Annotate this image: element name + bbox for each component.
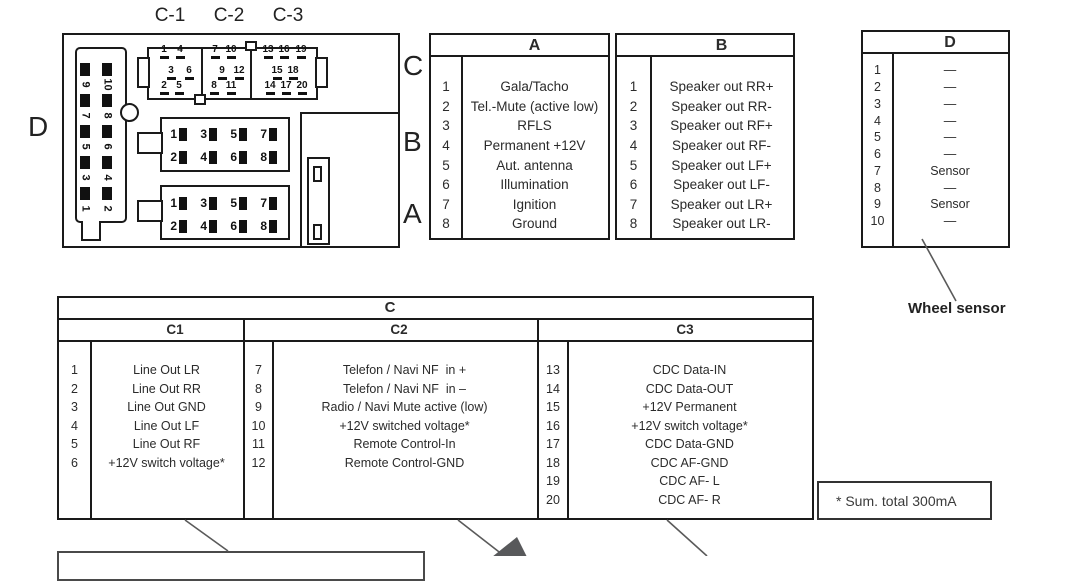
pin-number-cell: 8 <box>617 216 650 231</box>
pin-label-cell: — <box>892 130 1008 144</box>
pin-number: 10 <box>101 78 114 90</box>
pin-number-cell: 9 <box>245 400 272 414</box>
pin-number: 4 <box>177 45 183 55</box>
pin-number-cell: 1 <box>59 363 90 377</box>
table-row: 16+12V switch voltage* <box>539 417 812 436</box>
pin-number-cell: 13 <box>539 363 567 377</box>
pin-contact <box>227 56 236 59</box>
pin-label-cell: Line Out RR <box>90 382 243 396</box>
pin-marker: 6 <box>228 150 247 164</box>
pin-label-cell: Speaker out LR- <box>650 216 793 231</box>
pin-label-cell: — <box>892 147 1008 161</box>
pin-number-cell: 6 <box>59 456 90 470</box>
pin-contact <box>239 151 247 164</box>
pin-contact <box>239 220 247 233</box>
table-c1-section: 1Line Out LR2Line Out RR3Line Out GND4Li… <box>59 342 243 518</box>
pinout-sheet: 91078563412 1471013161936912151825811141… <box>0 0 1074 556</box>
pin-contact <box>266 92 275 95</box>
connector-latch-slot <box>313 224 322 240</box>
pin-contact <box>210 92 219 95</box>
pin-contact <box>211 56 220 59</box>
table-row: 7Telefon / Navi NF in + <box>245 361 537 380</box>
pin-marker: 2 <box>98 187 116 215</box>
table-c-body: 1Line Out LR2Line Out RR3Line Out GND4Li… <box>59 342 812 518</box>
pin-label-cell: CDC Data-IN <box>567 363 812 377</box>
pin-marker: 15 <box>269 66 285 80</box>
pin-number: 13 <box>262 45 273 55</box>
pin-contact <box>282 92 291 95</box>
pin-marker: 1 <box>156 45 172 59</box>
pin-marker: 8 <box>258 150 277 164</box>
pin-marker: 8 <box>206 81 222 95</box>
table-row: 2Line Out RR <box>59 380 243 399</box>
pin-label-cell: CDC AF- R <box>567 493 812 507</box>
pin-number: 6 <box>228 150 237 164</box>
pin-contact <box>179 197 187 210</box>
table-c-header: C <box>59 298 812 320</box>
pin-number-cell: 4 <box>863 114 892 128</box>
connector-c-right-tab <box>315 57 328 88</box>
pin-contact <box>102 125 112 138</box>
pin-number: 8 <box>258 150 267 164</box>
pin-label-cell: Line Out RF <box>90 437 243 451</box>
pin-marker: 9 <box>214 66 230 80</box>
table-row: 6— <box>863 146 1008 163</box>
pin-number: 3 <box>198 196 207 210</box>
pin-label-cell: CDC AF- L <box>567 474 812 488</box>
pin-label-cell: Line Out GND <box>90 400 243 414</box>
pin-marker: 3 <box>76 156 94 184</box>
table-row: 4Permanent +12V <box>431 136 608 156</box>
pin-contact <box>102 94 112 107</box>
pin-marker: 3 <box>198 196 217 210</box>
pin-number-cell: 12 <box>245 456 272 470</box>
pin-contact <box>239 128 247 141</box>
current-note-text: * Sum. total 300mA <box>836 493 957 509</box>
pin-number-cell: 2 <box>617 99 650 114</box>
pin-label-cell: Speaker out RR+ <box>650 79 793 94</box>
connector-c-top-slot <box>245 41 257 51</box>
column-divider <box>892 54 894 246</box>
leader-line-c2 <box>458 520 503 555</box>
pin-label-cell: Sensor <box>892 197 1008 211</box>
pin-label-cell: Illumination <box>461 177 608 192</box>
section-divider <box>243 320 245 518</box>
pin-number: 5 <box>228 196 237 210</box>
pin-number-cell: 15 <box>539 400 567 414</box>
pin-label-cell: +12V switch voltage* <box>90 456 243 470</box>
table-b-body: 1Speaker out RR+2Speaker out RR-3Speaker… <box>617 57 793 238</box>
pin-contact <box>160 56 169 59</box>
pin-number: 3 <box>79 174 92 180</box>
pin-number-cell: 1 <box>431 79 461 94</box>
pin-number-cell: 2 <box>59 382 90 396</box>
pin-number: 3 <box>198 127 207 141</box>
label-row-c: C <box>403 50 423 82</box>
pin-number-cell: 4 <box>59 419 90 433</box>
table-row: 2— <box>863 79 1008 96</box>
pin-contact <box>264 56 273 59</box>
table-row: 8Speaker out LR- <box>617 214 793 234</box>
pin-number: 2 <box>101 205 114 211</box>
table-row: 13CDC Data-IN <box>539 361 812 380</box>
pin-contact <box>269 220 277 233</box>
pin-label-cell: +12V Permanent <box>567 400 812 414</box>
table-row: 10— <box>863 213 1008 230</box>
table-row: 3RFLS <box>431 116 608 136</box>
pin-label-cell: Speaker out RR- <box>650 99 793 114</box>
pin-marker: 6 <box>228 219 247 233</box>
pin-number-cell: 6 <box>431 177 461 192</box>
pin-table-c: C C1 C2 C3 1Line Out LR2Line Out RR3Line… <box>57 296 814 520</box>
pin-number-cell: 18 <box>539 456 567 470</box>
pin-number: 8 <box>211 81 217 91</box>
pin-contact <box>209 151 217 164</box>
connector-c-divider <box>250 47 252 100</box>
pin-number: 6 <box>186 66 192 76</box>
pin-label-cell: Tel.-Mute (active low) <box>461 99 608 114</box>
pin-label-cell: Line Out LF <box>90 419 243 433</box>
pin-number: 10 <box>225 45 236 55</box>
pin-number: 4 <box>198 150 207 164</box>
pin-number-cell: 16 <box>539 419 567 433</box>
pin-marker: 4 <box>198 219 217 233</box>
pin-number-cell: 7 <box>245 363 272 377</box>
table-c2-section: 7Telefon / Navi NF in +8Telefon / Navi N… <box>245 342 537 518</box>
pin-marker: 1 <box>168 127 187 141</box>
table-c3-section: 13CDC Data-IN14CDC Data-OUT15+12V Perman… <box>539 342 812 518</box>
pin-number: 2 <box>168 150 177 164</box>
pin-label-cell: CDC AF-GND <box>567 456 812 470</box>
pin-number: 16 <box>278 45 289 55</box>
pin-number: 8 <box>258 219 267 233</box>
pin-number-cell: 8 <box>431 216 461 231</box>
pin-number-cell: 3 <box>59 400 90 414</box>
pin-table-b: B 1Speaker out RR+2Speaker out RR-3Speak… <box>615 33 795 240</box>
pin-contact <box>297 56 306 59</box>
pin-marker: 3 <box>163 66 179 80</box>
table-row: 2Tel.-Mute (active low) <box>431 97 608 117</box>
pin-contact <box>209 197 217 210</box>
table-row: 15+12V Permanent <box>539 398 812 417</box>
connector-c-left-tab <box>137 57 150 88</box>
pin-marker: 14 <box>262 81 278 95</box>
table-c-subheader: C1 C2 C3 <box>59 320 812 342</box>
label-c2-group: C-2 <box>206 5 252 27</box>
pin-number: 17 <box>280 81 291 91</box>
label-row-d: D <box>28 111 48 143</box>
pin-number-cell: 19 <box>539 474 567 488</box>
pin-contact <box>102 156 112 169</box>
table-c1-header: C1 <box>125 320 225 340</box>
pin-contact <box>160 92 169 95</box>
table-row: 5Line Out RF <box>59 435 243 454</box>
pin-contact <box>239 197 247 210</box>
pin-number: 7 <box>258 196 267 210</box>
label-row-a: A <box>403 198 422 230</box>
pin-contact <box>185 77 194 80</box>
pin-marker: 20 <box>294 81 310 95</box>
pin-number-cell: 3 <box>863 97 892 111</box>
pin-label-cell: Telefon / Navi NF in – <box>272 382 537 396</box>
connector-guide-hole <box>120 103 139 122</box>
pin-label-cell: Gala/Tacho <box>461 79 608 94</box>
pin-label-cell: Radio / Navi Mute active (low) <box>272 400 537 414</box>
pin-marker: 9 <box>76 63 94 91</box>
pin-number-cell: 6 <box>617 177 650 192</box>
pin-number-cell: 8 <box>863 181 892 195</box>
pin-number: 11 <box>226 81 237 91</box>
pin-marker: 7 <box>207 45 223 59</box>
table-row: 10+12V switched voltage* <box>245 417 537 436</box>
pin-marker: 16 <box>276 45 292 59</box>
pin-contact <box>280 56 289 59</box>
pin-number-cell: 20 <box>539 493 567 507</box>
pin-marker: 2 <box>168 150 187 164</box>
pin-marker: 5 <box>171 81 187 95</box>
pin-number: 3 <box>168 66 174 76</box>
connector-b-notch <box>137 132 163 154</box>
pin-number-cell: 8 <box>245 382 272 396</box>
pin-number: 8 <box>101 112 114 118</box>
pin-number: 4 <box>101 174 114 180</box>
pin-contact <box>80 125 90 138</box>
pin-number: 1 <box>168 127 177 141</box>
table-row: 9Radio / Navi Mute active (low) <box>245 398 537 417</box>
pin-number: 1 <box>161 45 167 55</box>
pin-contact <box>269 128 277 141</box>
pin-contact <box>227 92 236 95</box>
pin-marker: 4 <box>98 156 116 184</box>
table-row: 18CDC AF-GND <box>539 454 812 473</box>
pin-contact <box>298 92 307 95</box>
pin-label-cell: Speaker out RF+ <box>650 118 793 133</box>
pin-number-cell: 5 <box>863 130 892 144</box>
table-row: 1Speaker out RR+ <box>617 77 793 97</box>
pin-contact <box>179 128 187 141</box>
pin-contact <box>269 197 277 210</box>
pin-label-cell: Remote Control-In <box>272 437 537 451</box>
column-divider <box>90 342 92 518</box>
connector-latch-slot <box>313 166 322 182</box>
pin-label-cell: — <box>892 97 1008 111</box>
pin-number-cell: 2 <box>863 80 892 94</box>
table-c3-header: C3 <box>635 320 735 340</box>
pin-number: 5 <box>79 143 92 149</box>
table-row: 7Ignition <box>431 195 608 215</box>
table-row: 4Speaker out RF- <box>617 136 793 156</box>
pin-label-cell: Speaker out LF- <box>650 177 793 192</box>
pin-marker: 6 <box>181 66 197 80</box>
pin-label-cell: — <box>892 181 1008 195</box>
column-divider <box>272 342 274 518</box>
connector-d-key-tab <box>81 221 101 241</box>
pin-label-cell: Permanent +12V <box>461 138 608 153</box>
table-b-header: B <box>617 35 793 57</box>
pin-label-cell: Ground <box>461 216 608 231</box>
pin-number: 19 <box>295 45 306 55</box>
table-row: 8Telefon / Navi NF in – <box>245 380 537 399</box>
pin-number: 5 <box>176 81 182 91</box>
pin-marker: 19 <box>293 45 309 59</box>
pin-marker: 1 <box>76 187 94 215</box>
pin-marker: 10 <box>223 45 239 59</box>
connector-a-notch <box>137 200 163 222</box>
table-row: 4— <box>863 112 1008 129</box>
pin-marker: 5 <box>228 196 247 210</box>
label-row-b: B <box>403 126 422 158</box>
pin-number-cell: 4 <box>431 138 461 153</box>
pin-label-cell: +12V switched voltage* <box>272 419 537 433</box>
table-row: 7Sensor <box>863 163 1008 180</box>
pin-contact <box>179 151 187 164</box>
table-row: 1Line Out LR <box>59 361 243 380</box>
table-row: 14CDC Data-OUT <box>539 380 812 399</box>
pin-table-d: D 1—2—3—4—5—6—7Sensor8—9Sensor10— <box>861 30 1010 248</box>
leader-line-c3 <box>667 520 707 556</box>
pin-number: 20 <box>296 81 307 91</box>
pin-number-cell: 1 <box>617 79 650 94</box>
table-row: 4Line Out LF <box>59 417 243 436</box>
pin-number-cell: 10 <box>245 419 272 433</box>
pin-marker: 4 <box>172 45 188 59</box>
pin-marker: 8 <box>258 219 277 233</box>
pin-label-cell: — <box>892 114 1008 128</box>
leader-line-wheel-sensor <box>922 239 956 301</box>
pin-number: 2 <box>161 81 167 91</box>
section-divider <box>537 320 539 518</box>
pin-contact <box>102 187 112 200</box>
column-divider <box>461 57 463 238</box>
pin-number-cell: 3 <box>431 118 461 133</box>
pin-number-cell: 7 <box>431 197 461 212</box>
pin-number: 9 <box>219 66 225 76</box>
pin-contact <box>175 92 184 95</box>
pin-marker: 7 <box>258 127 277 141</box>
pin-number: 1 <box>79 205 92 211</box>
current-note-box: * Sum. total 300mA <box>817 481 992 520</box>
pin-label-cell: Telefon / Navi NF in + <box>272 363 537 377</box>
pin-marker: 6 <box>98 125 116 153</box>
table-row: 9Sensor <box>863 196 1008 213</box>
pin-marker: 3 <box>198 127 217 141</box>
column-divider <box>567 342 569 518</box>
pin-number-cell: 9 <box>863 197 892 211</box>
pin-label-cell: +12V switch voltage* <box>567 419 812 433</box>
pin-label-cell: Ignition <box>461 197 608 212</box>
table-row: 2Speaker out RR- <box>617 97 793 117</box>
pin-marker: 1 <box>168 196 187 210</box>
table-d-header: D <box>863 32 1008 54</box>
column-divider <box>650 57 652 238</box>
pin-marker: 5 <box>228 127 247 141</box>
pin-label-cell: Line Out LR <box>90 363 243 377</box>
pin-contact <box>209 128 217 141</box>
pin-number-cell: 5 <box>59 437 90 451</box>
pin-label-cell: — <box>892 63 1008 77</box>
pin-marker: 13 <box>260 45 276 59</box>
label-c3-group: C-3 <box>265 5 311 27</box>
pin-contact <box>176 56 185 59</box>
pin-marker: 7 <box>258 196 277 210</box>
label-c1-group: C-1 <box>147 5 193 27</box>
connector-c-divider <box>201 47 203 100</box>
pin-contact <box>80 94 90 107</box>
table-row: 19CDC AF- L <box>539 472 812 491</box>
table-a-body: 1Gala/Tacho2Tel.-Mute (active low)3RFLS4… <box>431 57 608 238</box>
pin-number-cell: 11 <box>245 437 272 451</box>
pin-number: 6 <box>228 219 237 233</box>
pin-number: 14 <box>264 81 275 91</box>
leader-line-c1 <box>185 520 228 551</box>
table-a-header: A <box>431 35 608 57</box>
pin-number-cell: 5 <box>431 158 461 173</box>
table-row: 11Remote Control-In <box>245 435 537 454</box>
pin-label-cell: Remote Control-GND <box>272 456 537 470</box>
table-row: 5— <box>863 129 1008 146</box>
pin-number-cell: 5 <box>617 158 650 173</box>
table-row: 17CDC Data-GND <box>539 435 812 454</box>
table-d-body: 1—2—3—4—5—6—7Sensor8—9Sensor10— <box>863 54 1008 246</box>
pin-contact <box>80 187 90 200</box>
pin-contact <box>102 63 112 76</box>
table-row: 5Aut. antenna <box>431 155 608 175</box>
pin-contact <box>80 156 90 169</box>
table-row: 3Speaker out RF+ <box>617 116 793 136</box>
pin-number: 4 <box>198 219 207 233</box>
pin-marker: 7 <box>76 94 94 122</box>
table-row: 7Speaker out LR+ <box>617 195 793 215</box>
table-row: 20CDC AF- R <box>539 491 812 510</box>
pin-label-cell: RFLS <box>461 118 608 133</box>
table-row: 6+12V switch voltage* <box>59 454 243 473</box>
connector-c-bottom-slot <box>194 94 206 105</box>
wheel-sensor-label: Wheel sensor <box>908 300 1006 317</box>
pin-number-cell: 7 <box>863 164 892 178</box>
pin-marker: 2 <box>156 81 172 95</box>
pin-contact <box>269 151 277 164</box>
table-row: 3— <box>863 96 1008 113</box>
pin-label-cell: — <box>892 80 1008 94</box>
pin-label-cell: Speaker out LF+ <box>650 158 793 173</box>
pin-label-cell: CDC Data-OUT <box>567 382 812 396</box>
pin-marker: 11 <box>223 81 239 95</box>
pin-number-cell: 10 <box>863 214 892 228</box>
pin-number-cell: 17 <box>539 437 567 451</box>
table-row: 1Gala/Tacho <box>431 77 608 97</box>
pin-label-cell: Speaker out RF- <box>650 138 793 153</box>
table-row: 3Line Out GND <box>59 398 243 417</box>
table-row: 5Speaker out LF+ <box>617 155 793 175</box>
table-c2-header: C2 <box>349 320 449 340</box>
pin-marker: 4 <box>198 150 217 164</box>
pin-number-cell: 7 <box>617 197 650 212</box>
pin-marker: 10 <box>98 63 116 91</box>
pin-contact <box>80 63 90 76</box>
pin-label-cell: Sensor <box>892 164 1008 178</box>
pin-number: 12 <box>233 66 244 76</box>
pin-number-cell: 3 <box>617 118 650 133</box>
pin-number-cell: 1 <box>863 63 892 77</box>
table-row: 12Remote Control-GND <box>245 454 537 473</box>
table-row: 8Ground <box>431 214 608 234</box>
pin-number-cell: 2 <box>431 99 461 114</box>
pin-number: 9 <box>79 81 92 87</box>
pin-label-cell: — <box>892 214 1008 228</box>
logo-fragment-triangle <box>492 537 527 556</box>
table-row: 1— <box>863 62 1008 79</box>
pin-number: 5 <box>228 127 237 141</box>
